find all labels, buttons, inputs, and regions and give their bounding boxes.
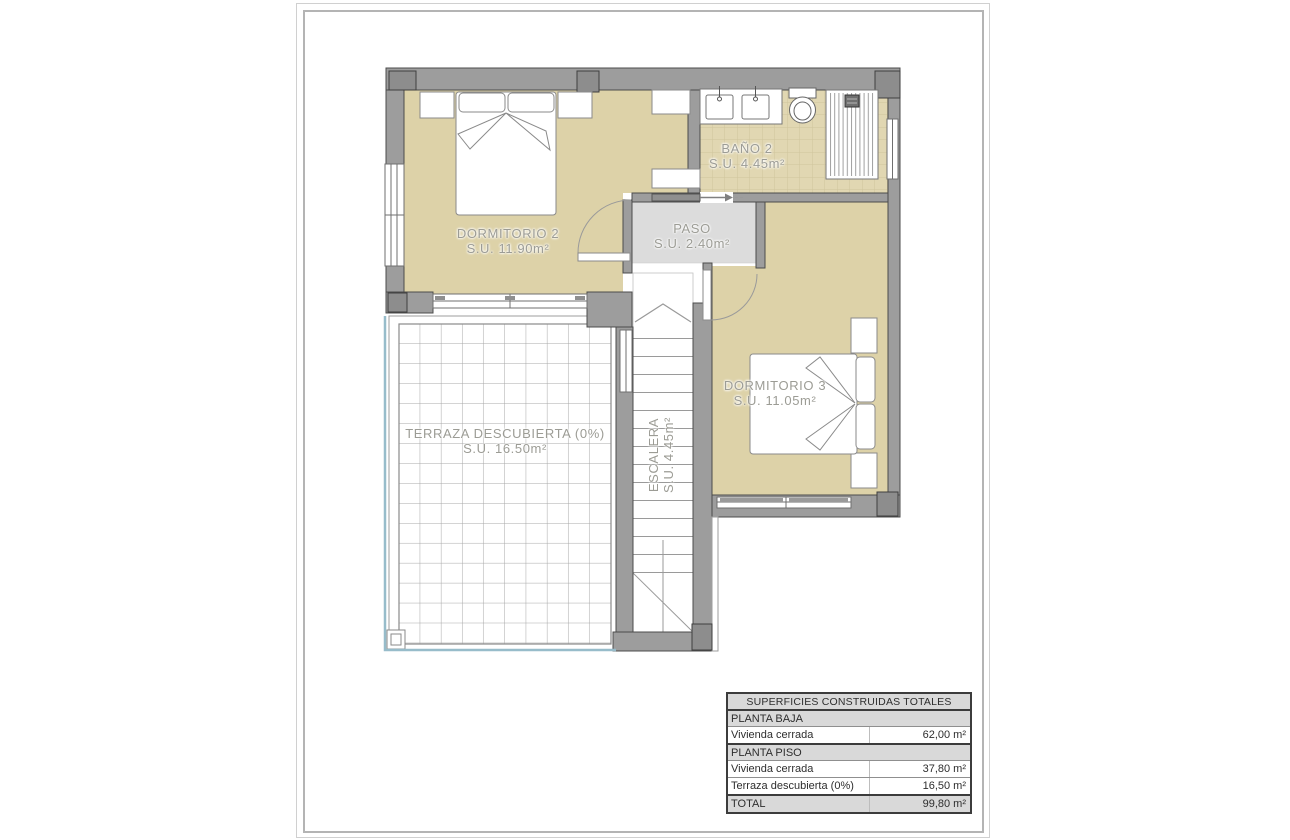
vanity-double-sink (700, 86, 782, 124)
floor-plan-drawing (0, 0, 1290, 840)
wall-pier-terraza-top (587, 292, 632, 327)
window-dorm3-bottom (717, 497, 851, 508)
row-value: 62,00 m² (869, 727, 970, 743)
pillow (508, 93, 554, 112)
toilet (789, 88, 816, 123)
wall-stair-right (693, 303, 712, 651)
wall-paso-dorm3 (756, 202, 765, 268)
room-name: DORMITORIO 2 (457, 226, 559, 241)
sliding-door-leaf (652, 194, 700, 201)
pilaster-top-right (875, 71, 900, 98)
door-leaf (703, 270, 711, 320)
wall-left-upper (386, 90, 404, 166)
pilaster-top-mid (577, 71, 599, 92)
window-stair-terraza (620, 330, 632, 392)
room-label-dormitorio2: DORMITORIO 2 S.U. 11.90m² (457, 226, 559, 256)
room-label-paso: PASO S.U. 2.40m² (654, 221, 730, 251)
table-section-planta-piso: PLANTA PISO (728, 745, 970, 761)
wall-left-lower (386, 264, 404, 294)
pillow (856, 404, 875, 449)
nightstand-top (851, 318, 877, 353)
room-area: S.U. 11.90m² (457, 241, 559, 256)
table-row: Vivienda cerrada 62,00 m² (728, 727, 970, 745)
room-area: S.U. 4.45m² (709, 156, 785, 171)
room-name: BAÑO 2 (709, 141, 785, 156)
table-row: Terraza descubierta (0%) 16,50 m² (728, 778, 970, 796)
row-label: TOTAL (728, 796, 869, 812)
table-title: SUPERFICIES CONSTRUIDAS TOTALES (728, 694, 970, 711)
pilaster-top-left (389, 71, 416, 90)
window-dorm2-bottom (433, 294, 587, 308)
pillow (856, 357, 875, 402)
table-row: Vivienda cerrada 37,80 m² (728, 761, 970, 778)
room-label-terraza: TERRAZA DESCUBIERTA (0%) S.U. 16.50m² (405, 426, 605, 456)
terraza-area (387, 316, 616, 650)
pilaster-left-mid (388, 293, 407, 312)
nightstand-bottom (851, 453, 877, 488)
row-value: 99,80 m² (869, 796, 970, 812)
room-label-escalera: ESCALERA S.U. 4.45m² (646, 417, 676, 493)
row-label: Terraza descubierta (0%) (728, 778, 869, 794)
closet-dorm2-top (652, 90, 690, 114)
pilaster-bottom-right (877, 492, 898, 516)
wall-dorm2-paso (623, 200, 632, 273)
wall-edge-below-dorm3 (712, 517, 718, 651)
shower (826, 90, 878, 179)
room-area: S.U. 2.40m² (654, 236, 730, 251)
row-value: 37,80 m² (869, 761, 970, 777)
table-section-planta-baja: PLANTA BAJA (728, 711, 970, 727)
room-name: PASO (654, 221, 730, 236)
row-label: Vivienda cerrada (728, 727, 869, 743)
room-label-dormitorio3: DORMITORIO 3 S.U. 11.05m² (724, 378, 826, 408)
room-area: S.U. 11.05m² (724, 393, 826, 408)
terraza-pergola-grid (399, 324, 611, 644)
room-name: ESCALERA (646, 417, 661, 493)
terraza-corner-column (387, 630, 405, 649)
door-bano-sliding (652, 192, 744, 203)
wall-top (386, 68, 900, 90)
areas-summary-table: SUPERFICIES CONSTRUIDAS TOTALES PLANTA B… (726, 692, 972, 814)
table-row-total: TOTAL 99,80 m² (728, 796, 970, 812)
room-name: TERRAZA DESCUBIERTA (0%) (405, 426, 605, 441)
room-area: S.U. 16.50m² (405, 441, 605, 456)
nightstand-left (420, 92, 454, 118)
row-label: Vivienda cerrada (728, 761, 869, 777)
window-bano-right (887, 119, 898, 179)
room-label-bano2: BAÑO 2 S.U. 4.45m² (709, 141, 785, 171)
shower-drain (845, 95, 859, 107)
closet-dorm2-low (652, 169, 700, 188)
nightstand-right (558, 92, 592, 118)
row-value: 16,50 m² (869, 778, 970, 794)
room-area: S.U. 4.45m² (661, 417, 676, 493)
room-name: DORMITORIO 3 (724, 378, 826, 393)
door-leaf (578, 253, 630, 261)
floor-plan-page: DORMITORIO 2 S.U. 11.90m² BAÑO 2 S.U. 4.… (0, 0, 1290, 840)
window-dorm2-left (385, 164, 404, 266)
pilaster-stair-bottom (692, 624, 712, 650)
pillow (459, 93, 505, 112)
